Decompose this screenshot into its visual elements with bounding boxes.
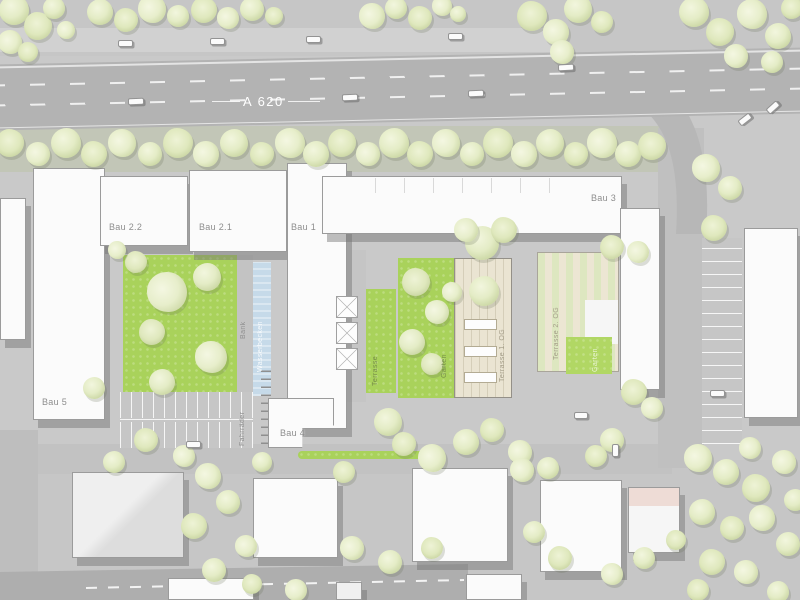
neighbor-building — [412, 468, 508, 562]
label-bike-parking: Fahrräder — [239, 396, 246, 446]
terrace-garden-square — [566, 337, 612, 374]
pavilion — [336, 348, 358, 370]
pavilion — [336, 322, 358, 344]
planter — [464, 372, 497, 383]
neighbor-building-west — [0, 198, 26, 340]
highway-name-label: A 620 — [243, 94, 284, 109]
label-water-basin: Wasserbecken — [257, 296, 264, 372]
neighbor-building — [336, 582, 362, 600]
label-bau4: Bau 4 — [280, 428, 305, 438]
label-bench: Bank — [240, 303, 247, 339]
label-terrace-2og: Terrasse 2. OG — [553, 276, 560, 360]
neighbor-building — [72, 472, 184, 558]
building-bau3-wing — [620, 208, 660, 390]
label-garden-2: Garten — [592, 340, 599, 372]
west-courtyard-lawn — [123, 255, 237, 392]
label-bau1: Bau 1 — [291, 222, 316, 232]
building-bau3 — [322, 176, 622, 234]
planter — [464, 319, 497, 330]
hedge-strip — [298, 451, 426, 459]
site-plan: A 620 Bau 5 — [0, 0, 800, 600]
label-bau22: Bau 2.2 — [109, 222, 142, 232]
planter — [464, 346, 497, 357]
highway-label-dash — [212, 101, 240, 102]
neighbor-building-east — [744, 228, 798, 418]
parking-divider — [120, 419, 253, 420]
building-bau22 — [100, 176, 188, 246]
neighbor-building — [628, 487, 680, 553]
neighbor-building — [540, 480, 622, 572]
parking-stalls — [702, 238, 742, 444]
label-bau21: Bau 2.1 — [199, 222, 232, 232]
parking-stalls — [120, 392, 253, 418]
pavilion — [336, 296, 358, 318]
roof-section-lines — [347, 178, 561, 193]
building-bau5 — [33, 168, 105, 420]
label-terrace-strip: Terrasse — [372, 330, 379, 386]
label-bau5: Bau 5 — [42, 397, 67, 407]
highway-label-dash — [288, 101, 320, 102]
label-garden-1: Garten — [441, 330, 448, 378]
lane-dash-line — [0, 87, 800, 106]
label-bau3: Bau 3 — [591, 193, 616, 203]
neighbor-building — [168, 578, 254, 600]
lane-dash-line — [0, 67, 800, 86]
building-bau21 — [189, 170, 287, 252]
parking-stalls — [120, 422, 253, 448]
neighbor-building — [466, 574, 522, 600]
label-terrace-1og: Terrasse 1. OG — [499, 298, 506, 382]
terrace-lawn-strip — [366, 289, 396, 393]
neighbor-building — [253, 478, 338, 558]
